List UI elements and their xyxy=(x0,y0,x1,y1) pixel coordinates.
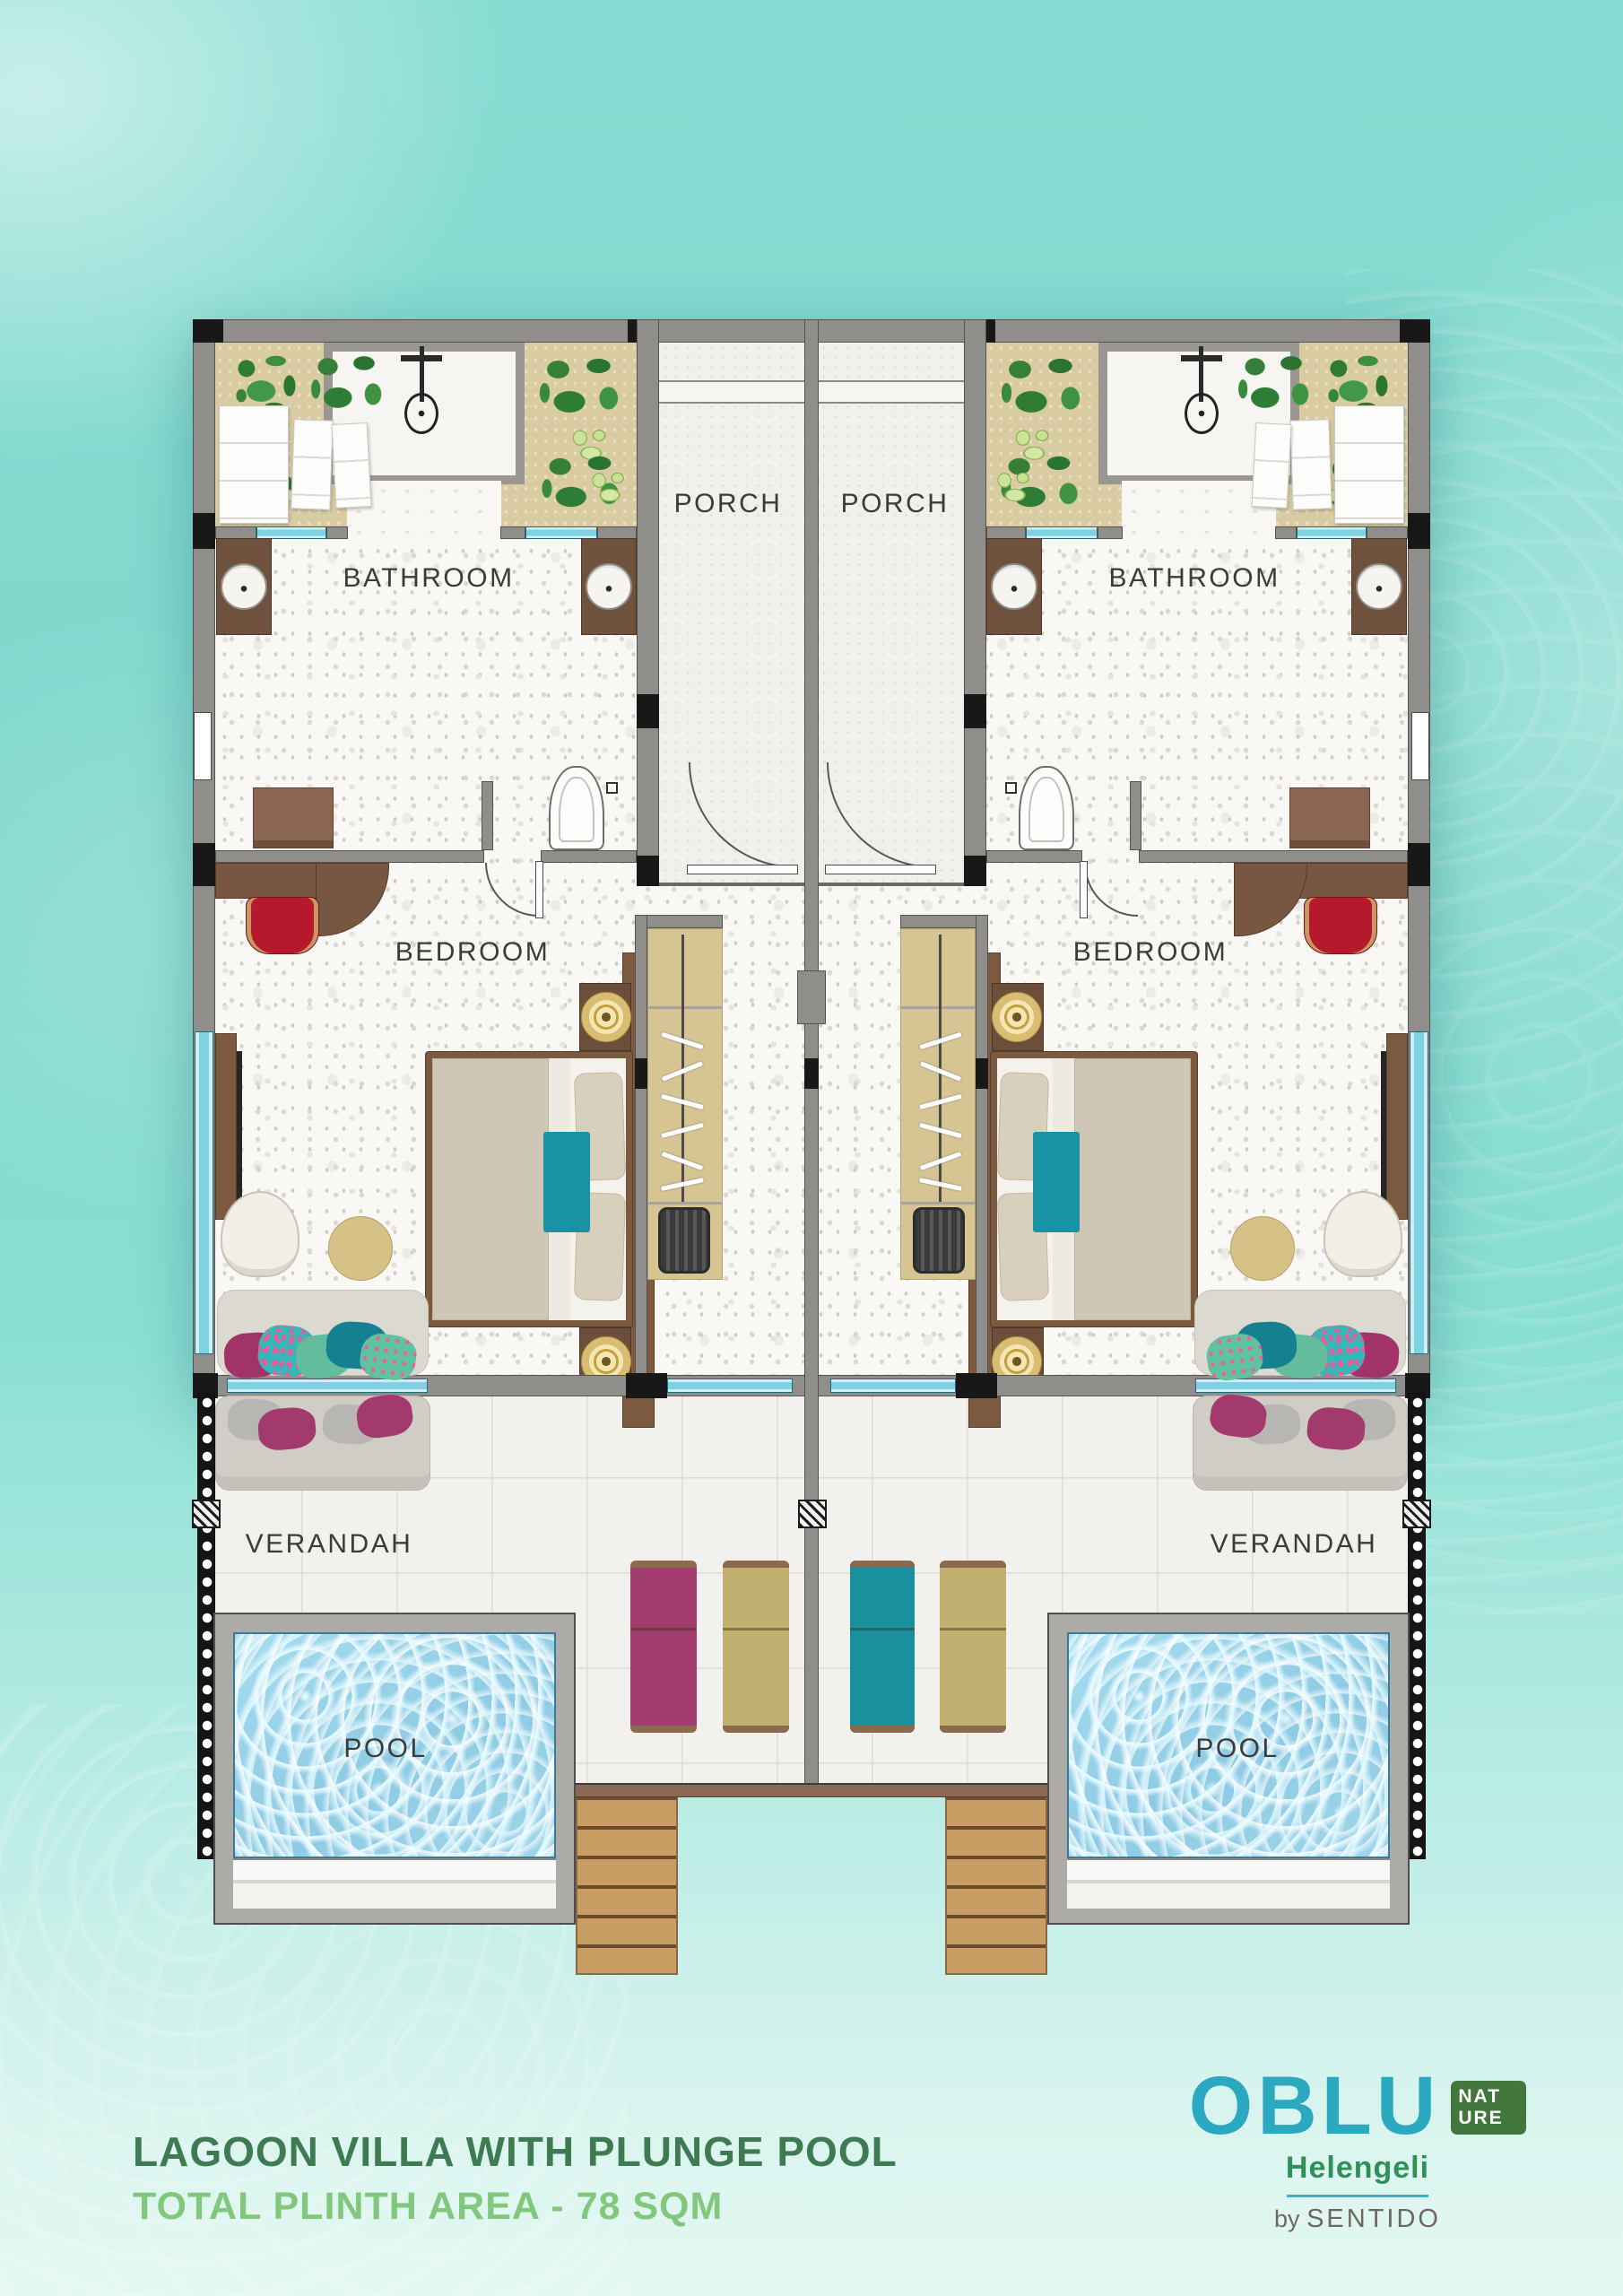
label-bathroom: BATHROOM xyxy=(1108,563,1280,594)
door-leaf xyxy=(687,865,798,874)
bed-duvet xyxy=(432,1058,549,1320)
wall-post xyxy=(635,1058,647,1089)
closet-shelf xyxy=(647,1202,723,1205)
label-bathroom: BATHROOM xyxy=(343,563,514,594)
label-bedroom: BEDROOM xyxy=(1073,937,1228,968)
page: PORCHPORCHBATHROOMBATHROOMBEDROOMBEDROOM… xyxy=(0,0,1623,2296)
towel xyxy=(332,422,372,509)
floor-plan: PORCHPORCHBATHROOMBATHROOMBEDROOMBEDROOM… xyxy=(0,0,1623,2296)
railing xyxy=(197,1393,215,1859)
sliding-glass-door xyxy=(1195,1378,1396,1393)
shower-arm xyxy=(401,355,442,361)
wall-post xyxy=(964,694,986,728)
porch-wall xyxy=(964,319,986,886)
towel xyxy=(291,419,333,509)
towel xyxy=(1289,419,1332,509)
closet-wall xyxy=(635,915,647,1377)
logo-nature-line2: URE xyxy=(1458,2108,1526,2129)
plant xyxy=(298,341,398,427)
basin xyxy=(991,563,1037,610)
shower-head-icon xyxy=(404,393,438,434)
shrub xyxy=(585,465,633,509)
shower-arm xyxy=(1181,355,1222,361)
party-wall-pier xyxy=(797,970,826,1024)
logo-byline: by SENTIDO xyxy=(1162,2205,1553,2234)
wall-post xyxy=(193,513,215,549)
bath-partition xyxy=(215,850,484,863)
window xyxy=(1026,526,1098,539)
logo-by-text: by xyxy=(1274,2205,1300,2232)
plan-subtitle: TOTAL PLINTH AREA - 78 SQM xyxy=(133,2185,898,2229)
caption: LAGOON VILLA WITH PLUNGE POOL TOTAL PLIN… xyxy=(133,2127,898,2229)
bed-runner xyxy=(1033,1132,1080,1232)
sun-lounger xyxy=(940,1561,1006,1733)
lagoon-steps xyxy=(945,1797,1047,1975)
door-leaf xyxy=(825,865,936,874)
label-pool: POOL xyxy=(1195,1734,1279,1764)
closet-shelf xyxy=(900,1202,976,1205)
pool-bench xyxy=(1067,1858,1390,1909)
railing xyxy=(1408,1393,1426,1859)
pool-bench xyxy=(233,1858,556,1909)
deck-edge xyxy=(576,1783,1047,1797)
tv-ledge xyxy=(215,1033,237,1220)
wall-post xyxy=(956,1373,997,1398)
desk-chair xyxy=(246,897,319,954)
flush-plate xyxy=(1005,782,1017,794)
lamp xyxy=(992,992,1042,1042)
logo-divider xyxy=(1287,2195,1428,2197)
desk-chair xyxy=(1304,897,1377,954)
basin xyxy=(586,563,632,610)
label-pool: POOL xyxy=(343,1734,427,1764)
wall-post xyxy=(1400,319,1430,343)
porch-step xyxy=(659,380,804,404)
armchair xyxy=(1324,1191,1402,1277)
suitcase xyxy=(913,1207,965,1274)
shower-head-icon xyxy=(1185,393,1219,434)
label-verandah: VERANDAH xyxy=(1211,1529,1378,1560)
basin xyxy=(1356,563,1402,610)
railing-post xyxy=(1402,1500,1431,1528)
logo-nature-line1: NAT xyxy=(1458,2086,1526,2108)
label-bedroom: BEDROOM xyxy=(395,937,551,968)
closet-shelf xyxy=(647,1006,723,1009)
closet-shelf xyxy=(900,1006,976,1009)
door-leaf xyxy=(1080,861,1088,918)
bath-partition xyxy=(541,850,637,863)
wall xyxy=(1098,526,1123,539)
lamp xyxy=(581,992,631,1042)
suitcase xyxy=(658,1207,710,1274)
bath-partition xyxy=(986,850,1082,863)
railing-post xyxy=(798,1500,827,1528)
wall-post xyxy=(637,856,659,886)
toilet xyxy=(1019,766,1074,850)
wall xyxy=(500,526,525,539)
wall-post xyxy=(1408,513,1430,549)
towel-shelf xyxy=(219,405,289,524)
wall-post xyxy=(1408,843,1430,886)
window xyxy=(525,526,597,539)
resort-logo: OBLU NAT URE Helengeli by SENTIDO xyxy=(1162,2074,1553,2234)
sun-lounger xyxy=(723,1561,789,1733)
wall xyxy=(1275,526,1297,539)
plant xyxy=(525,343,637,432)
plant xyxy=(986,343,1098,432)
plan-title: LAGOON VILLA WITH PLUNGE POOL xyxy=(133,2127,898,2176)
bath-partition xyxy=(1139,850,1408,863)
party-wall xyxy=(804,319,819,1785)
porch-edge xyxy=(659,883,804,886)
lagoon-steps xyxy=(576,1797,678,1975)
bed-runner xyxy=(543,1132,590,1232)
toilet-screen xyxy=(1130,781,1141,850)
wall xyxy=(597,526,637,539)
wall-post xyxy=(804,1058,819,1089)
logo-oblu-text: OBLU xyxy=(1189,2074,1441,2138)
towel xyxy=(1252,422,1292,509)
closet-wall xyxy=(976,915,988,1377)
toilet xyxy=(549,766,604,850)
wall-post xyxy=(193,843,215,886)
plant xyxy=(1225,341,1325,427)
logo-nature-badge: NAT URE xyxy=(1451,2081,1526,2135)
closet-wall xyxy=(635,915,723,928)
wall xyxy=(326,526,348,539)
shrub xyxy=(990,465,1038,509)
wall xyxy=(215,526,256,539)
service-door xyxy=(1411,712,1429,780)
label-porch: PORCH xyxy=(841,489,950,519)
porch-step xyxy=(819,380,964,404)
window xyxy=(1297,526,1367,539)
flush-plate xyxy=(606,782,618,794)
wall-post xyxy=(193,319,223,343)
bed-duvet xyxy=(1074,1058,1191,1320)
logo-location: Helengeli xyxy=(1162,2151,1553,2186)
basin xyxy=(221,563,267,610)
door-leaf xyxy=(535,861,543,918)
wall-post xyxy=(637,694,659,728)
bath-bench xyxy=(1289,787,1370,848)
wall xyxy=(1367,526,1408,539)
railing-post xyxy=(192,1500,221,1528)
wall-post xyxy=(964,856,986,886)
tv xyxy=(1381,1051,1386,1202)
window xyxy=(256,526,326,539)
sun-lounger xyxy=(850,1561,915,1733)
sun-lounger xyxy=(630,1561,697,1733)
label-porch: PORCH xyxy=(674,489,783,519)
ottoman xyxy=(328,1216,393,1281)
bath-bench xyxy=(253,787,334,848)
logo-wordmark: OBLU NAT URE xyxy=(1162,2074,1553,2138)
sliding-glass-door xyxy=(830,1378,956,1393)
porch-edge xyxy=(819,883,964,886)
wall xyxy=(986,526,1026,539)
armchair xyxy=(221,1191,299,1277)
sliding-glass-door xyxy=(667,1378,793,1393)
ottoman xyxy=(1230,1216,1295,1281)
wall-post xyxy=(626,1373,667,1398)
sliding-glass-door xyxy=(227,1378,428,1393)
window xyxy=(195,1031,213,1354)
porch-wall xyxy=(637,319,659,886)
toilet-screen xyxy=(482,781,493,850)
service-door xyxy=(194,712,212,780)
wall-post xyxy=(976,1058,988,1089)
label-verandah: VERANDAH xyxy=(246,1529,413,1560)
towel-shelf xyxy=(1334,405,1404,524)
window xyxy=(1410,1031,1428,1354)
tv xyxy=(237,1051,242,1202)
tv-ledge xyxy=(1386,1033,1408,1220)
logo-brand-text: SENTIDO xyxy=(1306,2205,1441,2233)
